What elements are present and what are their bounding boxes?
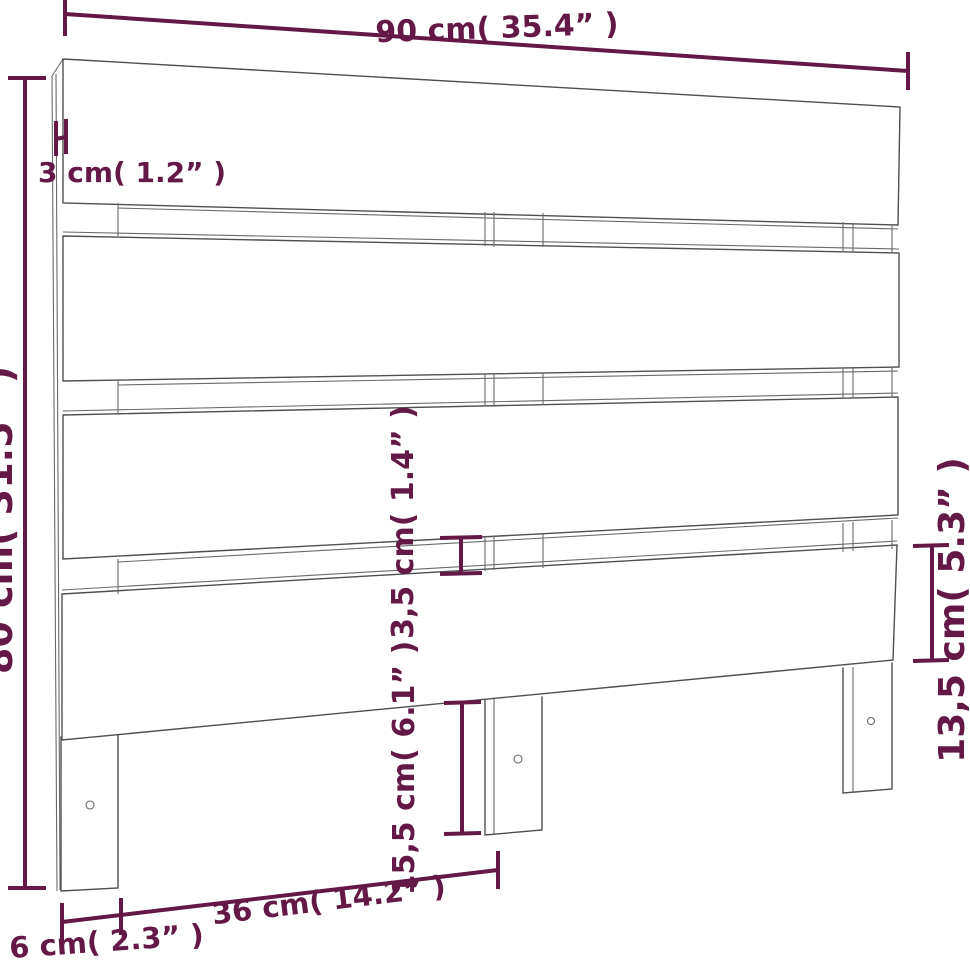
bottom-slat-dimension: 13,5 cm( 5.3” ) [913,457,970,763]
leg-spacing-dimension-label: 36 cm( 14.2” ) [210,869,448,931]
right-leg-hole [868,718,875,725]
left-leg-hole [86,801,94,809]
center-leg [485,697,542,835]
slat-2 [63,236,899,381]
posts-gap-3 [118,520,892,594]
height-dimension: 80 cm( 31.5” ) [0,78,46,888]
headboard-dimension-diagram: 90 cm( 35.4” ) 3 cm( 1.2” ) 80 cm( 31.5”… [0,0,970,970]
leg-height-dimension-label: 15,5 cm( 6.1” ) [387,641,422,896]
slat-gap-dimension-label: 3,5 cm( 1.4” ) [386,405,421,639]
leg-width-dimension-label: 6 cm( 2.3” ) [8,917,205,965]
width-dimension: 90 cm( 35.4” ) [65,0,908,90]
slat-3 [63,397,898,559]
left-leg [61,735,118,891]
diagram-canvas: 90 cm( 35.4” ) 3 cm( 1.2” ) 80 cm( 31.5”… [0,0,970,970]
slat-gap-dimension: 3,5 cm( 1.4” ) [386,405,482,639]
leg-height-dimension: 15,5 cm( 6.1” ) [387,641,481,896]
center-leg-hole [514,755,522,763]
slat-1 [63,59,900,225]
width-dimension-label: 90 cm( 35.4” ) [375,7,619,50]
thickness-dimension-label: 3 cm( 1.2” ) [38,156,226,189]
thickness-dimension: 3 cm( 1.2” ) [38,119,226,189]
height-dimension-label: 80 cm( 31.5” ) [0,366,21,674]
right-leg [843,663,892,793]
leg-spacing-dimension: 6 cm( 2.3” ) 36 cm( 14.2” ) [8,851,498,965]
bottom-slat-dimension-label: 13,5 cm( 5.3” ) [932,457,970,763]
